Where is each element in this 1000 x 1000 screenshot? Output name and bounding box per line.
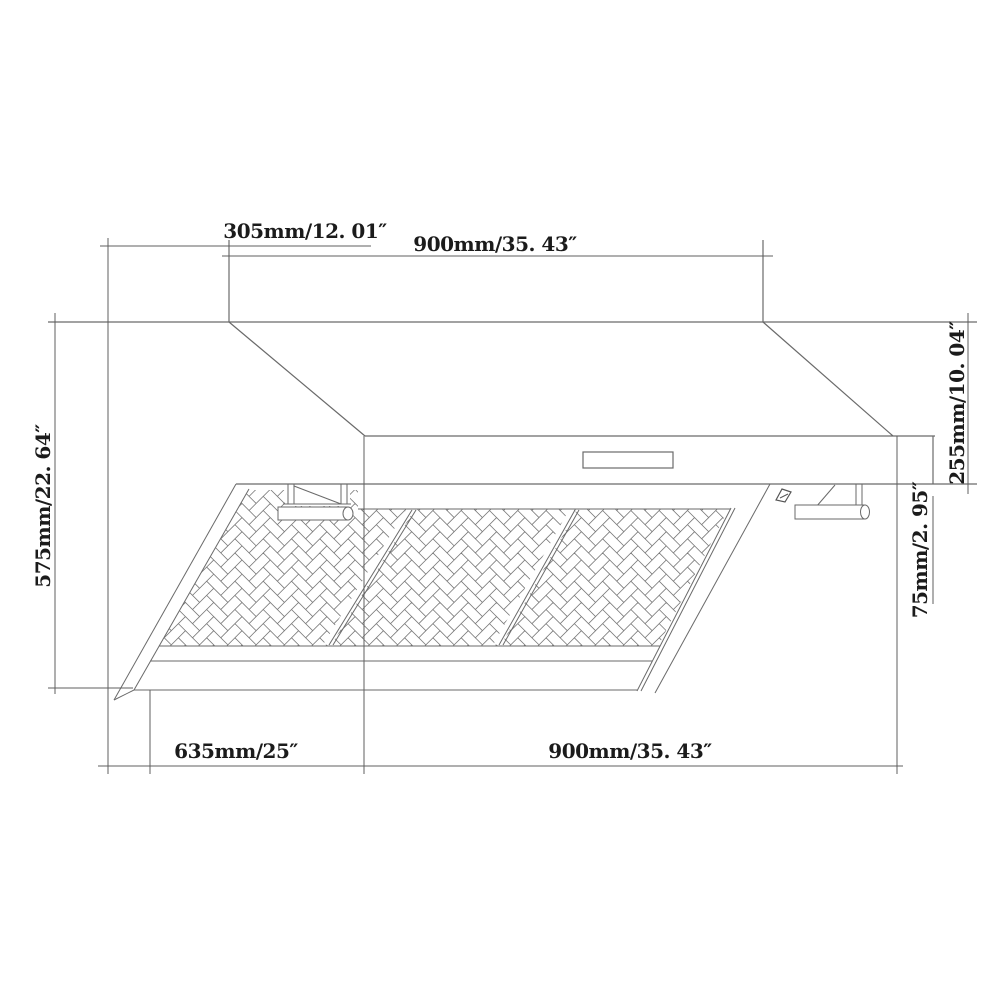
hood-line-drawing: [0, 0, 1000, 1000]
label-duct-offset: 305mm/12. 01″: [223, 219, 386, 243]
hood-outline: [48, 240, 977, 484]
dimension-diagram-page: 305mm/12. 01″ 900mm/35. 43″ 575mm/22. 64…: [0, 0, 1000, 1000]
label-bottom-left-width: 635mm/25″: [174, 739, 298, 763]
label-lip-height: 75mm/2. 95″: [908, 482, 932, 619]
right-filter-bracket: [776, 484, 870, 519]
baffle-filters: [0, 79, 935, 1000]
label-front-height: 255mm/10. 04″: [945, 321, 969, 484]
left-filter-bracket: [278, 484, 353, 520]
label-top-width: 900mm/35. 43″: [413, 232, 576, 256]
label-body-width: 900mm/35. 43″: [548, 739, 711, 763]
label-total-height: 575mm/22. 64″: [31, 424, 55, 587]
control-panel: [583, 452, 673, 468]
